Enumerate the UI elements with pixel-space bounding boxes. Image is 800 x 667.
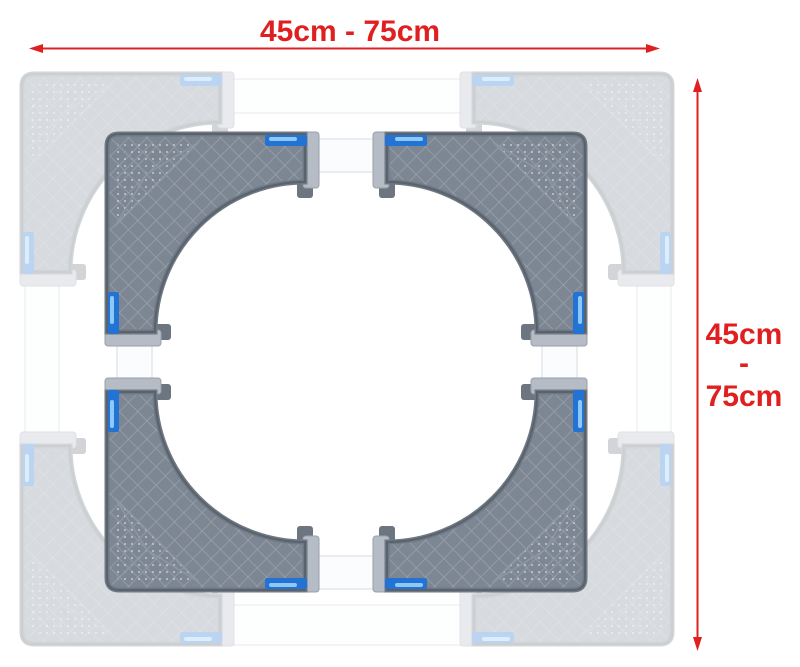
arrow-right-head-icon	[646, 44, 660, 53]
arrow-left-head-icon	[29, 44, 43, 53]
corner-pad-bottom-left	[105, 378, 319, 592]
ghost-tube-bottom	[220, 605, 470, 645]
right-dimension-label: 45cm - 75cm	[706, 318, 783, 413]
contracted-position-frame	[105, 132, 587, 592]
corner-pad-top-right	[373, 132, 587, 346]
diagram-canvas: 45cm - 75cm 45cm - 75cm	[0, 0, 800, 667]
arrow-up-head-icon	[693, 78, 702, 92]
corner-pad-top-left	[105, 132, 319, 346]
arrow-down-head-icon	[693, 637, 702, 651]
corner-pad-bottom-right	[373, 378, 587, 592]
tube-bottom	[310, 556, 382, 589]
ghost-tube-top	[220, 79, 470, 113]
top-dimension-label: 45cm - 75cm	[260, 15, 440, 48]
ghost-tube-left	[25, 270, 59, 450]
tube-top	[310, 139, 382, 172]
ghost-tube-right	[637, 270, 671, 450]
right-dimension-label-line3: 75cm	[706, 380, 783, 413]
product-dimension-diagram: 45cm - 75cm 45cm - 75cm	[0, 0, 800, 667]
right-dimension-arrow	[693, 78, 702, 651]
right-dimension-label-line2: -	[739, 347, 749, 380]
